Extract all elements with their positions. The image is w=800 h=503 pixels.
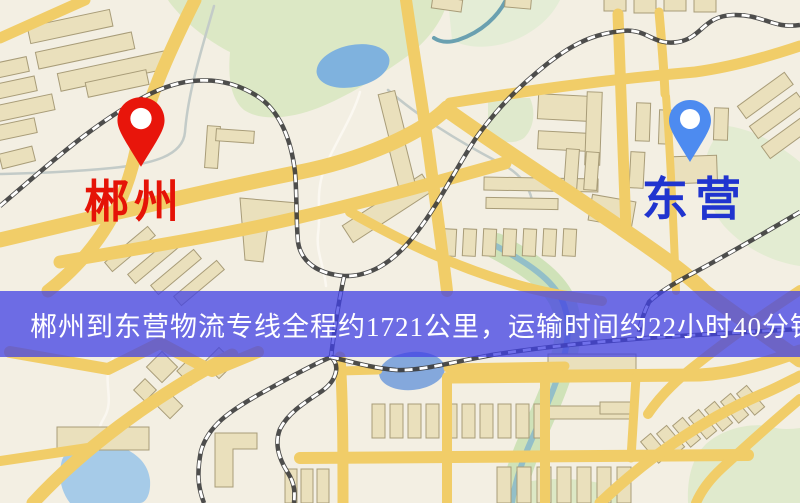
route-info-banner: 郴州到东营物流专线全程约1721公里，运输时间约22小时40分钟. (0, 291, 800, 357)
origin-marker-label: 郴州 (84, 180, 184, 225)
route-info-text: 郴州到东营物流专线全程约1721公里，运输时间约22小时40分钟. (30, 305, 800, 344)
red-location-pin-icon[interactable] (114, 95, 168, 169)
map-container: 郴州 东营 郴州到东营物流专线全程约1721公里，运输时间约22小时40分钟. (0, 0, 800, 503)
blue-location-pin-icon[interactable] (666, 98, 714, 164)
destination-marker-label: 东营 (642, 177, 748, 223)
pin-hole (680, 109, 700, 129)
map-canvas[interactable] (0, 0, 800, 503)
origin-marker[interactable] (114, 95, 168, 169)
pin-hole (130, 108, 151, 129)
destination-marker[interactable] (666, 98, 714, 164)
